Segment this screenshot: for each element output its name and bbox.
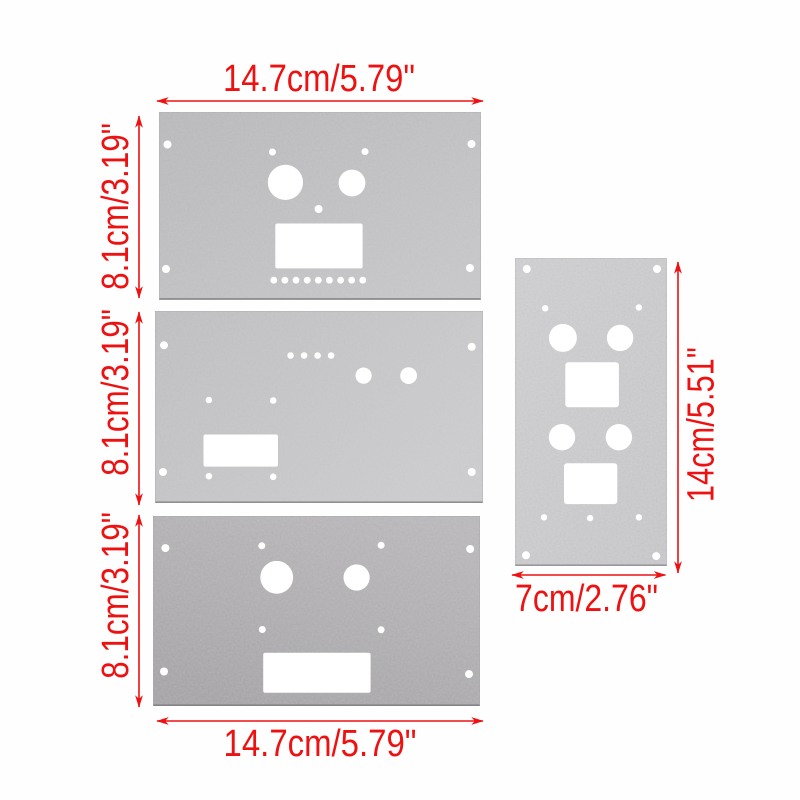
svg-text:8.1cm/3.19": 8.1cm/3.19" [94,123,136,290]
svg-text:8.1cm/3.19": 8.1cm/3.19" [94,309,136,476]
svg-text:14cm/5.51": 14cm/5.51" [681,347,723,502]
svg-text:8.1cm/3.19": 8.1cm/3.19" [94,512,136,679]
svg-text:7cm/2.76": 7cm/2.76" [515,577,658,619]
svg-text:14.7cm/5.79": 14.7cm/5.79" [223,57,415,100]
svg-text:14.7cm/5.79": 14.7cm/5.79" [224,722,417,765]
